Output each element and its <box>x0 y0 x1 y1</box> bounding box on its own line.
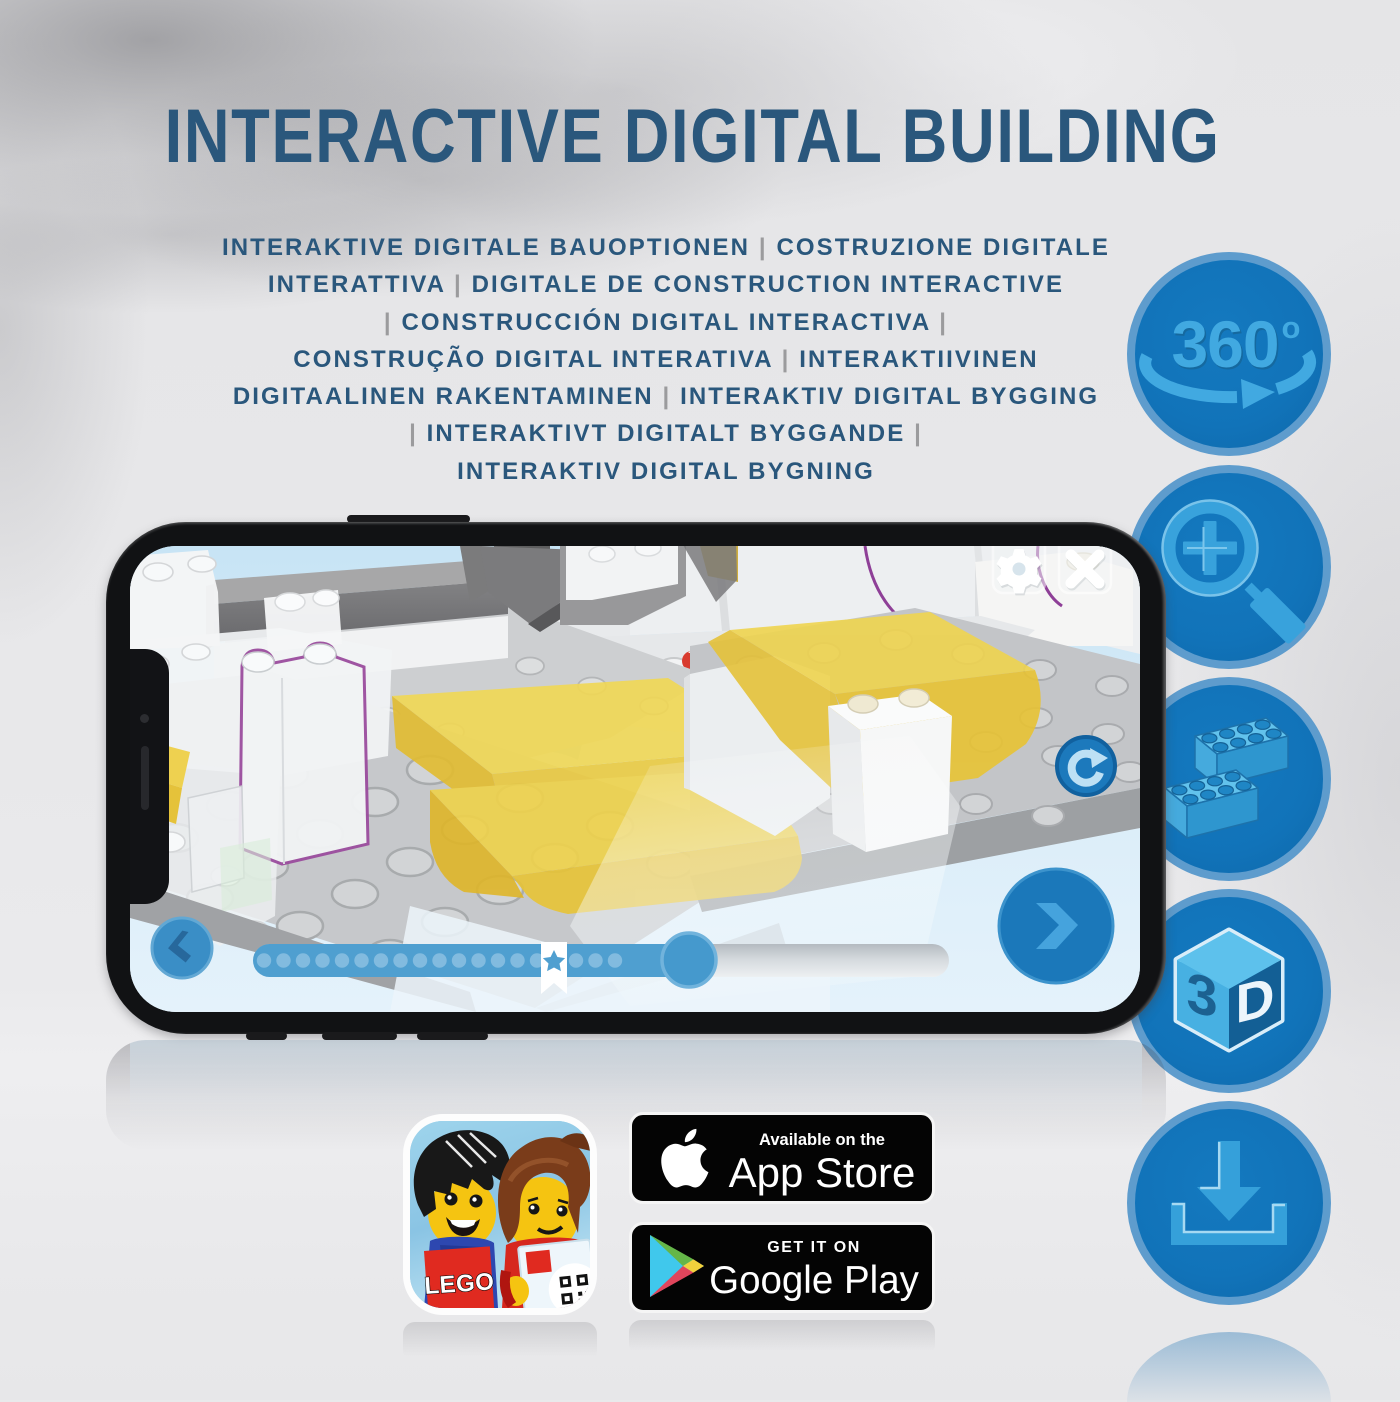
svg-text:Available on the: Available on the <box>759 1131 885 1149</box>
svg-text:360: 360 <box>1171 307 1278 381</box>
svg-text:Google Play: Google Play <box>709 1259 919 1302</box>
svg-text:D: D <box>1235 964 1274 1035</box>
svg-text:LEGO: LEGO <box>424 1268 496 1300</box>
svg-text:App Store: App Store <box>729 1149 916 1196</box>
svg-text:o: o <box>1282 310 1301 345</box>
svg-text:GET IT ON: GET IT ON <box>767 1239 861 1256</box>
svg-text:3: 3 <box>1186 961 1217 1031</box>
